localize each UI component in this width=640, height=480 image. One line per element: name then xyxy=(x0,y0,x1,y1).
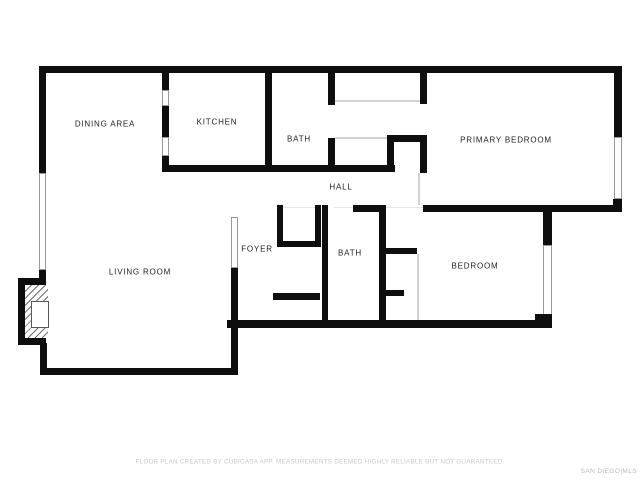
wall-segment xyxy=(328,73,335,105)
wall-segment xyxy=(423,205,622,212)
wall-segment xyxy=(265,73,272,168)
floor-plan: DINING AREA KITCHEN BATH PRIMARY BEDROOM… xyxy=(0,0,640,480)
room-label-dining-area: DINING AREA xyxy=(75,120,135,129)
mls-watermark: SAN DIEGO|MLS xyxy=(581,468,637,475)
wall-segment xyxy=(379,205,386,325)
room-label-hall: HALL xyxy=(329,183,352,192)
wall-segment xyxy=(273,293,320,300)
window xyxy=(614,137,622,199)
window xyxy=(543,245,552,315)
fireplace-firebox xyxy=(31,301,49,328)
door-opening xyxy=(162,90,169,106)
room-label-bath-upper: BATH xyxy=(287,135,311,144)
door-threshold-line xyxy=(334,207,353,208)
wall-segment xyxy=(322,205,328,325)
door-opening xyxy=(231,217,238,268)
wall-segment xyxy=(39,66,46,173)
wall-segment xyxy=(613,199,622,212)
wall-segment xyxy=(387,135,394,172)
closet-line xyxy=(417,254,419,320)
fireplace-wall xyxy=(18,278,25,345)
closet-line xyxy=(335,100,420,102)
window xyxy=(39,173,46,270)
wall-segment xyxy=(39,66,622,73)
wall-segment xyxy=(535,314,552,328)
room-label-foyer: FOYER xyxy=(241,245,273,254)
wall-segment xyxy=(543,212,552,245)
wall-segment xyxy=(162,165,395,172)
room-label-bath-lower: BATH xyxy=(338,249,362,258)
wall-segment xyxy=(386,248,417,254)
footer-disclaimer: FLOOR PLAN CREATED BY CUBICASA APP. MEAS… xyxy=(135,459,504,466)
room-label-primary-bedroom: PRIMARY BEDROOM xyxy=(460,136,552,145)
door-threshold-line xyxy=(386,207,423,208)
wall-segment xyxy=(420,135,427,173)
room-label-living-room: LIVING ROOM xyxy=(109,268,171,277)
closet-line xyxy=(335,137,387,139)
wall-segment xyxy=(227,320,552,328)
wall-segment xyxy=(40,368,238,375)
room-label-kitchen: KITCHEN xyxy=(197,118,238,127)
room-label-bedroom: BEDROOM xyxy=(452,262,499,271)
wall-segment xyxy=(386,290,404,296)
wall-segment xyxy=(162,73,169,90)
wall-segment xyxy=(328,138,335,172)
room-boundary-line xyxy=(418,173,420,205)
wall-segment xyxy=(315,205,321,247)
wall-segment xyxy=(420,73,427,104)
wall-segment xyxy=(614,66,622,137)
door-opening xyxy=(162,137,169,156)
door-threshold-line xyxy=(283,207,315,208)
wall-segment xyxy=(162,106,169,137)
